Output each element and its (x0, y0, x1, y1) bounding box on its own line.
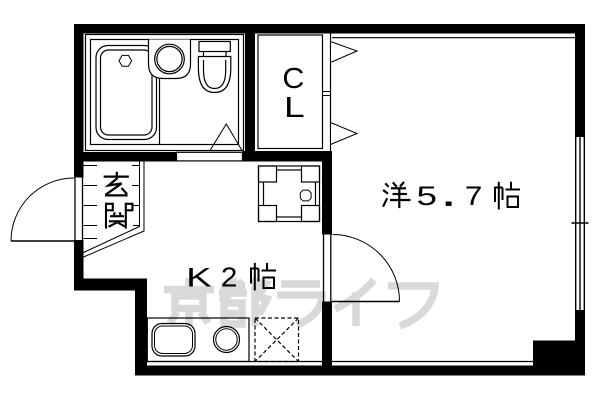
svg-text:K: K (186, 263, 212, 293)
svg-text:7: 7 (465, 181, 483, 211)
svg-text:L: L (284, 92, 305, 124)
svg-text:2: 2 (221, 262, 238, 293)
svg-text:C: C (282, 63, 304, 95)
svg-text:5: 5 (417, 181, 438, 211)
